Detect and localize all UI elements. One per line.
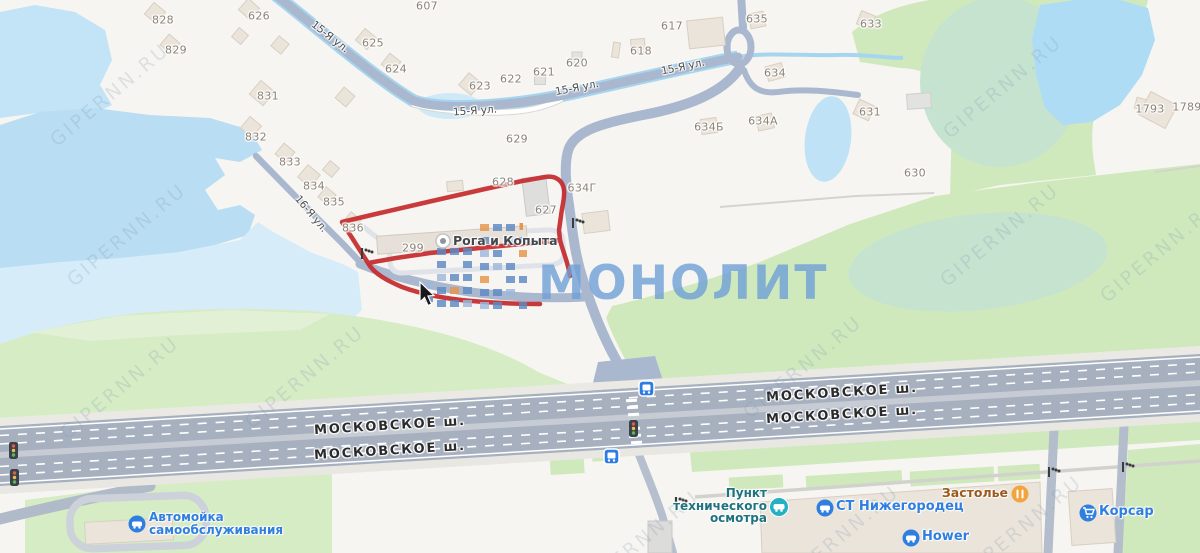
poi-inspection-line1: Пункт bbox=[673, 487, 767, 500]
building-number: 635 bbox=[746, 13, 768, 26]
building-number: 835 bbox=[323, 196, 345, 209]
poi-korsar[interactable]: Корсар bbox=[1099, 505, 1154, 519]
building-number: 629 bbox=[506, 133, 528, 146]
building-number: 622 bbox=[500, 73, 522, 86]
building-number: 832 bbox=[245, 131, 267, 144]
poi-carwash-line1: Автомойка bbox=[149, 511, 283, 524]
map-canvas[interactable]: МОНОЛИТ 82882962662562460762362262162061… bbox=[0, 0, 1200, 553]
auto-dealer-icon bbox=[817, 500, 834, 517]
building-number: 617 bbox=[661, 20, 683, 33]
poi-st-nizhegorodets[interactable]: СТ Нижегородец bbox=[836, 500, 964, 514]
carwash-icon bbox=[129, 516, 146, 533]
building-number: 634Г bbox=[568, 182, 597, 195]
poi-carwash-line2: самообслуживания bbox=[149, 524, 283, 537]
building-number: 833 bbox=[279, 156, 301, 169]
building-number: 607 bbox=[416, 0, 438, 13]
building-number: 620 bbox=[566, 57, 588, 70]
building-number: 634 bbox=[764, 67, 786, 80]
building-number: 631 bbox=[859, 106, 881, 119]
building-number: 626 bbox=[248, 10, 270, 23]
monolit-logo-text: МОНОЛИТ bbox=[538, 260, 828, 307]
building-number: 627 bbox=[535, 204, 557, 217]
inspection-icon bbox=[770, 498, 789, 517]
poi-roga-i-kopyta[interactable]: Рога и Копыта bbox=[453, 234, 558, 247]
poi-inspection[interactable]: Пункт технического осмотра bbox=[673, 487, 767, 525]
building-number: 828 bbox=[152, 14, 174, 27]
org-poi-icon bbox=[436, 234, 450, 248]
building-number: 634А bbox=[748, 115, 778, 128]
hower-icon bbox=[903, 530, 920, 547]
poi-hower[interactable]: Hower bbox=[922, 530, 969, 544]
cart-icon bbox=[1080, 505, 1097, 522]
building-number: 630 bbox=[904, 167, 926, 180]
building-number: 623 bbox=[469, 80, 491, 93]
building-number: 1789 bbox=[1172, 101, 1200, 114]
building-number: 836 bbox=[342, 222, 364, 235]
poi-inspection-line3: осмотра bbox=[673, 512, 767, 525]
building-number: 834 bbox=[303, 180, 325, 193]
building-number: 628 bbox=[492, 176, 514, 189]
building-number: 634Б bbox=[694, 121, 724, 134]
building-number: 621 bbox=[533, 66, 555, 79]
poi-carwash[interactable]: Автомойка самообслуживания bbox=[149, 511, 283, 536]
poi-zastolye[interactable]: Застолье bbox=[942, 486, 1008, 499]
building-number: 624 bbox=[385, 63, 407, 76]
restaurant-icon bbox=[1012, 486, 1029, 503]
building-number: 618 bbox=[630, 45, 652, 58]
building-number: 625 bbox=[362, 37, 384, 50]
building-number: 1793 bbox=[1135, 103, 1164, 116]
building-number: 299 bbox=[402, 242, 424, 255]
building-number: 633 bbox=[860, 18, 882, 31]
building-number: 831 bbox=[257, 90, 279, 103]
